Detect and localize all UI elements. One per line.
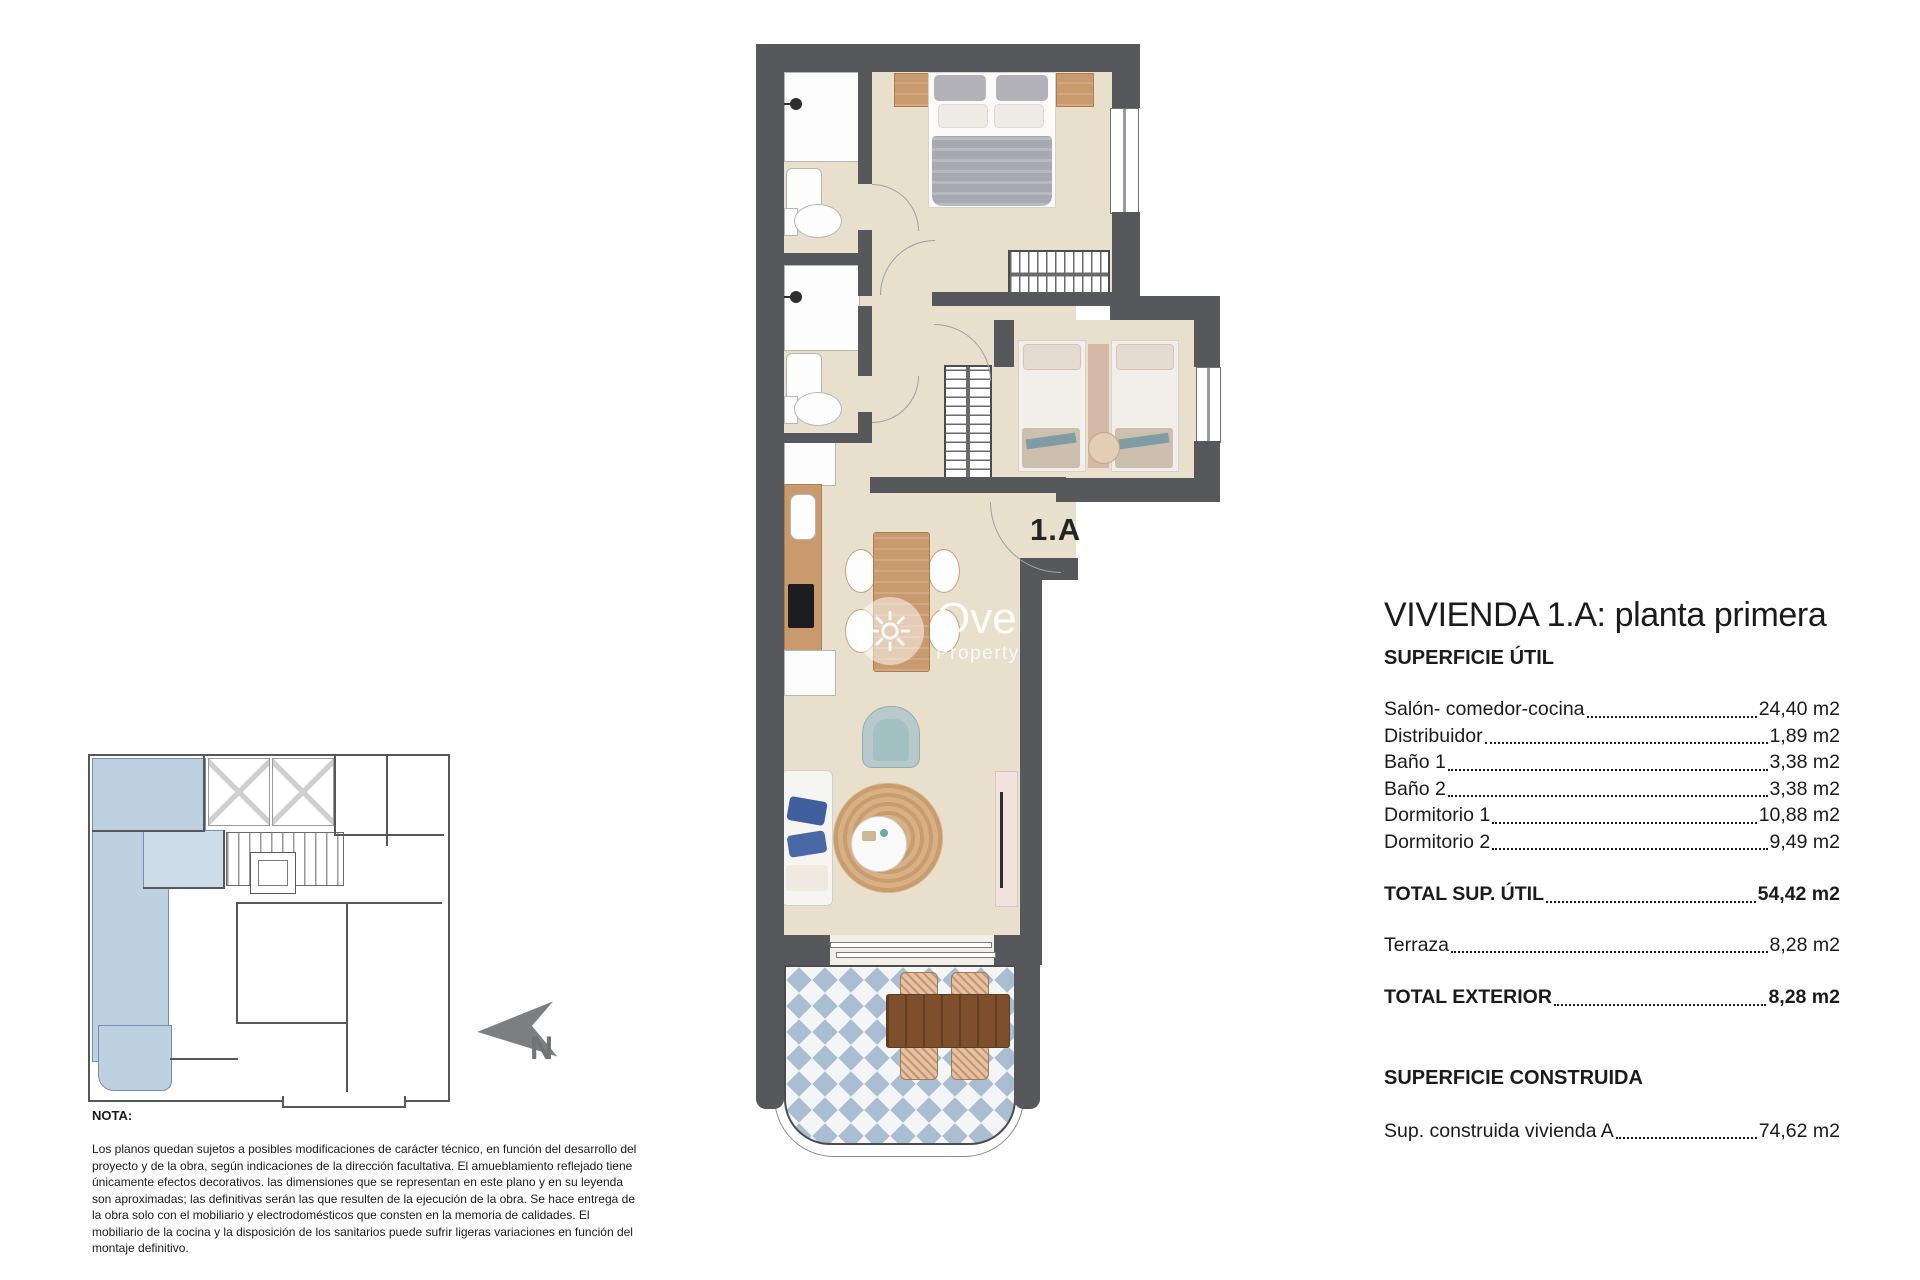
room-label: Dormitorio 1 (1384, 802, 1490, 829)
single-bed (1111, 340, 1179, 472)
dotted-leader (1546, 901, 1756, 903)
north-label: N (530, 1030, 553, 1067)
wall (756, 44, 1140, 72)
shower-tray (784, 265, 860, 351)
note-heading: NOTA: (92, 1108, 637, 1123)
sofa-pillow (787, 830, 828, 858)
measurement-panel: VIVIENDA 1.A: planta primera SUPERFICIE … (1384, 596, 1840, 1144)
room-label: Terraza (1384, 932, 1449, 959)
watermark: Overseas Property Market (856, 596, 1124, 665)
room-label: Baño 2 (1384, 776, 1446, 803)
wall-line (386, 756, 388, 846)
wall-line (203, 756, 205, 832)
total-value: 54,42 m2 (1758, 881, 1840, 908)
armchair-cushion (873, 719, 909, 761)
note-body: Los planos quedan sujetos a posibles mod… (92, 1141, 637, 1257)
room-area-list: Salón- comedor-cocina 24,40 m2 Distribui… (1384, 696, 1840, 1144)
key-plan (86, 750, 458, 1110)
total-util-row: TOTAL SUP. ÚTIL 54,42 m2 (1384, 881, 1840, 908)
window (1110, 108, 1139, 214)
room-label: Salón- comedor-cocina (1384, 696, 1585, 723)
dotted-leader (1485, 742, 1768, 744)
room-label: Sup. construida vivienda A (1384, 1118, 1614, 1145)
unit-label: 1.A (1030, 512, 1081, 548)
wall (784, 433, 866, 443)
wall (756, 935, 830, 965)
wall (858, 230, 872, 296)
pillow (994, 104, 1044, 128)
dotted-leader (1448, 795, 1768, 797)
kitchen-cabinet (784, 650, 836, 696)
wall (756, 44, 784, 965)
toilet (794, 204, 842, 238)
sun-icon (856, 597, 924, 665)
wall (994, 935, 1042, 965)
area-row: Salón- comedor-cocina 24,40 m2 (1384, 696, 1840, 723)
shower-tray (784, 72, 860, 162)
dotted-leader (1554, 1004, 1767, 1006)
wall (858, 306, 872, 376)
terrace-chair (900, 1044, 938, 1080)
armchair (862, 706, 920, 768)
section-heading-superficie-construida: SUPERFICIE CONSTRUIDA (1384, 1067, 1840, 1090)
total-value: 8,28 m2 (1768, 984, 1840, 1011)
room-value: 3,38 m2 (1770, 749, 1840, 776)
dotted-leader (1587, 716, 1757, 718)
wall-line (236, 902, 442, 904)
shaft-hatch (272, 758, 334, 826)
sofa-pillow (786, 796, 828, 826)
blanket (932, 136, 1052, 206)
coffee-table (851, 816, 907, 872)
wall (870, 477, 1066, 493)
sliding-door (836, 952, 996, 958)
area-row: Dormitorio 2 9,49 m2 (1384, 829, 1840, 856)
north-indicator: N (478, 996, 588, 1086)
wall-line (92, 830, 205, 832)
pouf (1088, 432, 1120, 464)
shower-arm-icon (784, 103, 794, 105)
wall (1014, 965, 1040, 1109)
sofa-throw (786, 865, 828, 891)
area-row: Distribuidor 1,89 m2 (1384, 723, 1840, 750)
room-value: 8,28 m2 (1770, 932, 1840, 959)
terrace-table (886, 994, 1010, 1048)
key-plan-porch (282, 1096, 406, 1108)
window (1196, 367, 1221, 443)
wall (756, 965, 784, 1109)
wardrobe (944, 365, 992, 481)
wall (1020, 580, 1042, 965)
wall-line (334, 834, 444, 836)
dotted-leader (1616, 1137, 1757, 1139)
total-exterior-row: TOTAL EXTERIOR 8,28 m2 (1384, 984, 1840, 1011)
room-label: Baño 1 (1384, 749, 1446, 776)
double-bed (928, 72, 1056, 208)
wall-line (236, 1022, 348, 1024)
sun-icon-glyph (868, 609, 912, 653)
wall-line (346, 902, 348, 1092)
wall (1112, 212, 1140, 296)
pillow (996, 75, 1048, 101)
pillow (934, 75, 986, 101)
dotted-leader (1492, 848, 1767, 850)
page-title: VIVIENDA 1.A: planta primera (1384, 596, 1840, 635)
sliding-door (830, 942, 992, 948)
wall (1056, 478, 1220, 502)
room-value: 74,62 m2 (1759, 1118, 1840, 1145)
dotted-leader (1448, 769, 1768, 771)
sofa (781, 770, 833, 906)
constructed-row: Sup. construida vivienda A 74,62 m2 (1384, 1118, 1840, 1145)
wall-line (143, 887, 225, 889)
shower-arm-icon (784, 296, 794, 298)
terrace-door-opening (830, 935, 994, 965)
terraza-row: Terraza 8,28 m2 (1384, 932, 1840, 959)
room-label: Dormitorio 2 (1384, 829, 1490, 856)
wall-line (170, 1058, 238, 1060)
dining-chair (928, 549, 960, 593)
tv-sideboard (995, 771, 1018, 907)
pillow (1023, 344, 1081, 370)
terrace-chair (951, 1044, 989, 1080)
wall-line (334, 756, 336, 834)
page: Overseas Property Market (0, 0, 1920, 1280)
elevator (250, 852, 296, 894)
wall-line (236, 902, 238, 1024)
single-bed (1018, 340, 1086, 472)
note-block: NOTA: Los planos quedan sujetos a posibl… (92, 1108, 637, 1257)
floor-plan: Overseas Property Market (756, 44, 1226, 1174)
dotted-leader (1451, 951, 1768, 953)
wall (1112, 44, 1140, 108)
dotted-leader (1492, 822, 1756, 824)
nightstand (1056, 73, 1094, 107)
room-value: 9,49 m2 (1770, 829, 1840, 856)
pillow (1116, 344, 1174, 370)
wall-line (223, 830, 225, 887)
room-value: 10,88 m2 (1759, 802, 1840, 829)
key-plan-highlight (98, 1025, 172, 1091)
table-decor (880, 829, 888, 837)
section-heading-superficie-util: SUPERFICIE ÚTIL (1384, 647, 1840, 670)
wall (932, 292, 1138, 306)
area-row: Baño 2 3,38 m2 (1384, 776, 1840, 803)
room-value: 1,89 m2 (1770, 723, 1840, 750)
shaft-hatch (208, 758, 270, 826)
nightstand (894, 73, 932, 107)
room-value: 3,38 m2 (1770, 776, 1840, 803)
key-plan-highlight (92, 758, 206, 832)
key-plan-highlight (143, 830, 225, 889)
wall (784, 253, 858, 265)
total-label: TOTAL SUP. ÚTIL (1384, 881, 1544, 908)
tv (1000, 792, 1003, 888)
room-value: 24,40 m2 (1759, 696, 1840, 723)
total-label: TOTAL EXTERIOR (1384, 984, 1552, 1011)
cooktop (788, 584, 814, 628)
area-row: Baño 1 3,38 m2 (1384, 749, 1840, 776)
wall (1194, 296, 1220, 367)
area-row: Dormitorio 1 10,88 m2 (1384, 802, 1840, 829)
pillow (938, 104, 988, 128)
kitchen-sink (790, 494, 816, 540)
table-decor (862, 831, 876, 841)
wall (858, 72, 872, 184)
kitchen-cabinet (784, 442, 836, 486)
wall (994, 320, 1014, 367)
room-label: Distribuidor (1384, 723, 1483, 750)
toilet (794, 392, 842, 426)
